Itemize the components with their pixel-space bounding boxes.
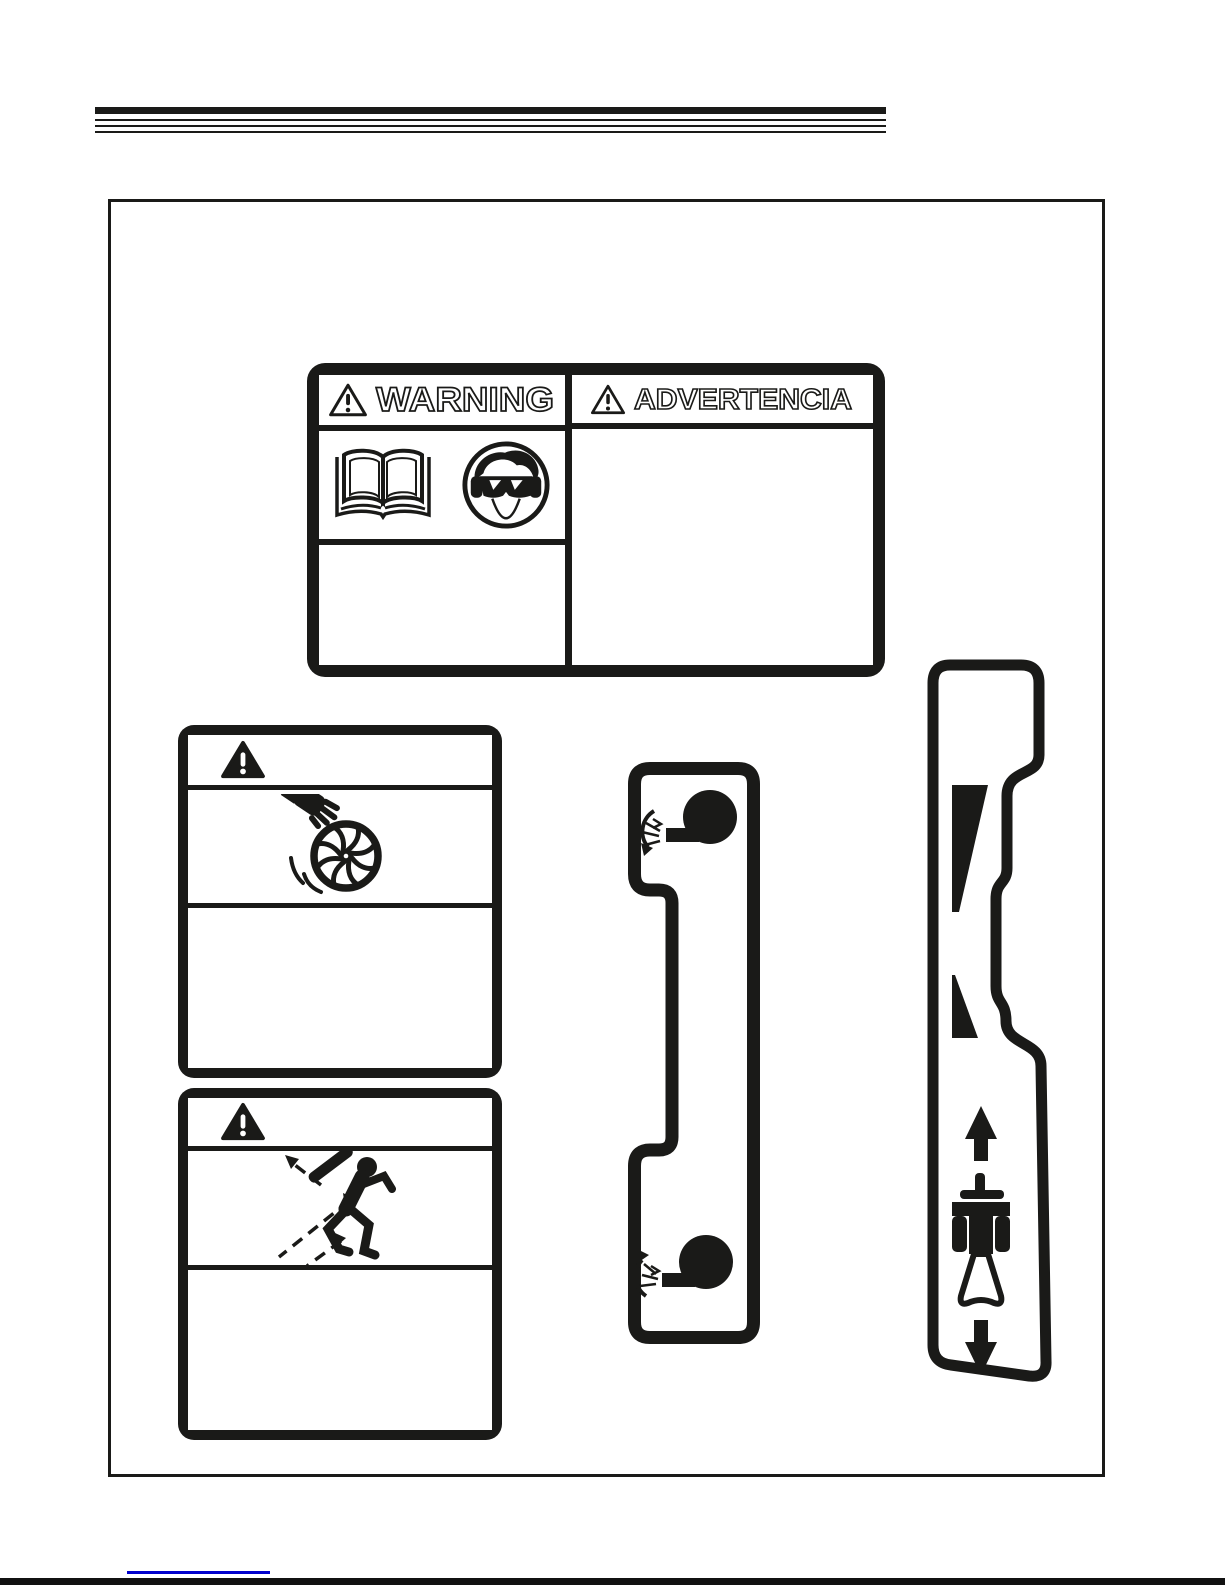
speed-control-decal — [922, 656, 1054, 1422]
advertencia-header: ADVERTENCIA — [572, 375, 873, 423]
page-bottom-edge — [0, 1578, 1225, 1585]
warning-text-area — [319, 545, 565, 665]
hazard-header — [188, 1098, 492, 1146]
footer-blue-mark — [127, 1571, 270, 1574]
hand-in-impeller-icon — [280, 794, 400, 900]
read-manual-book-icon — [332, 443, 434, 527]
header-thin-rule — [95, 131, 886, 133]
warning-triangle-icon — [328, 382, 368, 418]
warning-pictograms — [319, 431, 565, 539]
hazard-pictogram — [188, 1151, 492, 1265]
thrown-objects-hazard-decal — [178, 1088, 502, 1440]
hazard-text-area — [188, 908, 492, 1068]
deflector-control-decal — [628, 762, 760, 1344]
advertencia-text-area — [572, 429, 873, 665]
warning-triangle-icon — [590, 383, 626, 416]
svg-text:WARNING: WARNING — [376, 381, 554, 419]
warning-header: WARNING — [319, 375, 565, 425]
hazard-pictogram — [188, 790, 492, 903]
svg-text:ADVERTENCIA: ADVERTENCIA — [634, 384, 852, 416]
manual-page: WARNING — [0, 0, 1225, 1585]
header-thin-rule — [95, 119, 886, 121]
advertencia-signal-word: ADVERTENCIA — [633, 382, 855, 416]
header-thick-rule — [95, 107, 886, 114]
impeller-hazard-decal — [178, 725, 502, 1078]
thrown-objects-icon — [265, 1149, 415, 1267]
warning-panel-english: WARNING — [319, 375, 565, 665]
warning-signal-word: WARNING — [375, 381, 557, 419]
warning-triangle-icon — [220, 1102, 266, 1142]
eye-protection-goggles-icon — [460, 439, 552, 531]
warning-panel-spanish: ADVERTENCIA — [572, 375, 873, 665]
bilingual-warning-decal: WARNING — [307, 363, 885, 677]
hazard-text-area — [188, 1270, 492, 1430]
hazard-header — [188, 735, 492, 785]
warning-triangle-icon — [220, 740, 266, 780]
header-thin-rule — [95, 125, 886, 127]
